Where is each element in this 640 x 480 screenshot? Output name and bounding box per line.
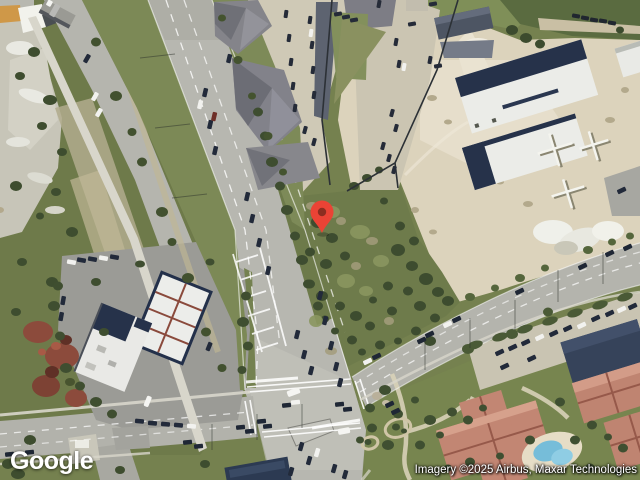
satellite-imagery bbox=[0, 0, 640, 480]
google-logo[interactable]: Google bbox=[10, 447, 93, 476]
imagery-attribution: Imagery ©2025 Airbus, Maxar Technologies bbox=[415, 464, 637, 476]
marker-inner-dot bbox=[318, 208, 326, 216]
map-canvas[interactable]: Google Imagery ©2025 Airbus, Maxar Techn… bbox=[0, 0, 640, 480]
